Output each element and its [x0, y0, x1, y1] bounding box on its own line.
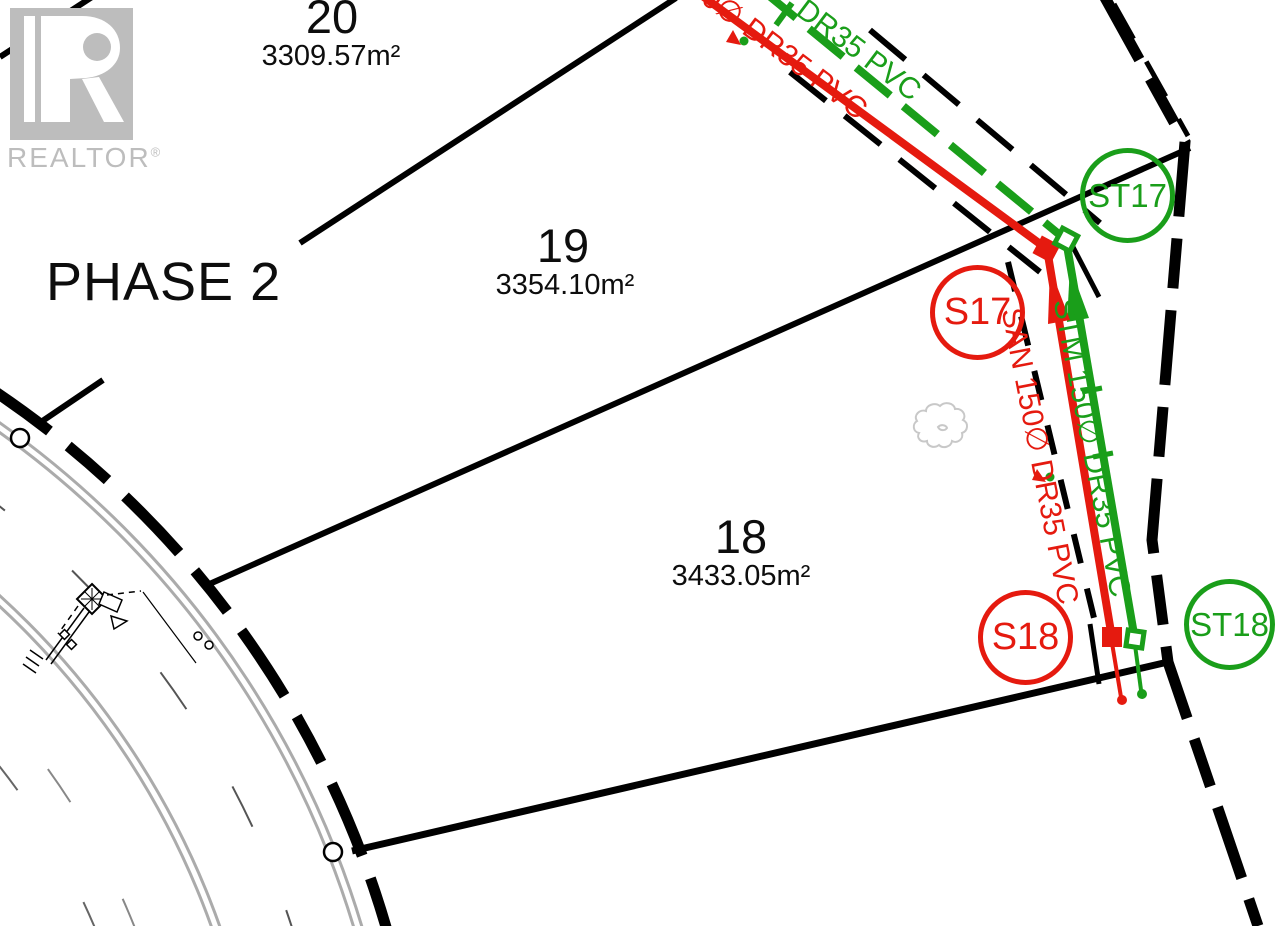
registered-trademark-symbol: ®: [151, 145, 163, 160]
survey-point-circle: [324, 843, 342, 861]
lot-boundary-lines: [0, 0, 1190, 851]
realtor-logo-wordmark: REALTOR®: [7, 142, 162, 174]
sanitary-stub-end: [1117, 695, 1127, 705]
lot-18-number: 18: [715, 509, 767, 564]
service-connection-markers: [726, 30, 1055, 482]
manhole-label: ST18: [1190, 606, 1269, 644]
lot-19-area: 3354.10m²: [496, 269, 635, 302]
manhole-label: ST17: [1088, 177, 1167, 215]
survey-point-circle: [11, 429, 29, 447]
road-pavement-marking-arcs: [0, 315, 335, 926]
lot-18-area: 3433.05m²: [672, 560, 811, 593]
road-row-dashed-curve: [0, 225, 425, 926]
row-boundary-dashed-line: [1103, 0, 1258, 926]
phase-label: PHASE 2: [46, 251, 281, 313]
tree-symbol: [914, 403, 967, 447]
manhole-label: S18: [992, 616, 1060, 659]
storm-manhole-callout-st18: ST18: [1184, 579, 1275, 670]
survey-monument: [77, 584, 127, 629]
lot-20-area: 3309.57m²: [262, 40, 401, 73]
lot-19-number: 19: [537, 218, 589, 273]
realtor-logo-mark: [10, 8, 133, 140]
realtor-logo-text: REALTOR: [7, 142, 151, 173]
storm-manhole-callout-st17: ST17: [1080, 148, 1175, 243]
storm-stub-end: [1137, 689, 1147, 699]
road-curb-arcs: [0, 248, 402, 926]
lot-20-number: 20: [306, 0, 358, 44]
site-plan-page: REALTOR® PHASE 2 20 3309.57m² 19 3354.10…: [0, 0, 1280, 926]
